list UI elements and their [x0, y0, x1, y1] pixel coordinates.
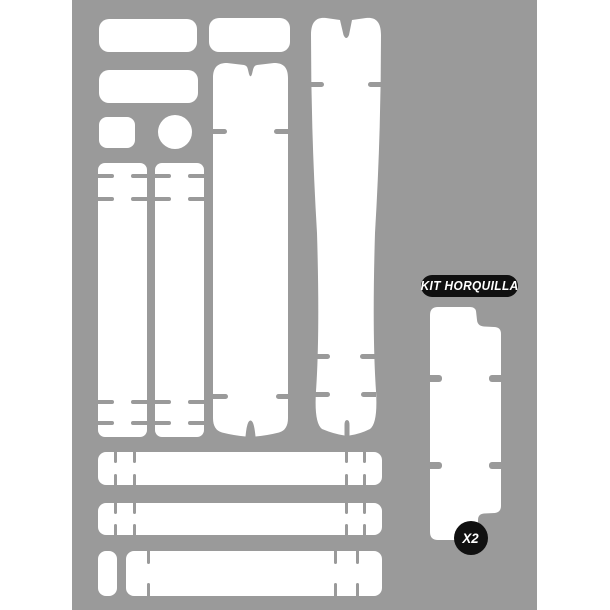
- cut-notch: [98, 197, 114, 201]
- piece-top-strip-right: [209, 18, 290, 52]
- cut-notch: [188, 174, 204, 178]
- cut-notch: [368, 82, 383, 87]
- sticker-sheet-board: [72, 0, 537, 610]
- cut-slit: [363, 503, 366, 514]
- product-image: KIT HORQUILLA X2: [0, 0, 610, 610]
- piece-horizontal-strip-3: [126, 551, 382, 596]
- cut-notch: [212, 394, 228, 399]
- cut-slit: [114, 452, 117, 463]
- cut-slit: [345, 503, 348, 514]
- piece-horizontal-strip-1: [98, 452, 382, 485]
- cut-notch: [155, 421, 171, 425]
- cut-notch: [155, 400, 171, 404]
- cut-notch: [98, 400, 114, 404]
- piece-small-square: [99, 117, 135, 148]
- cut-slit: [345, 452, 348, 463]
- cut-notch: [211, 129, 227, 134]
- cut-slit: [345, 474, 348, 485]
- quantity-badge: X2: [454, 521, 488, 555]
- cut-notch: [131, 421, 147, 425]
- cut-notch: [155, 197, 171, 201]
- cut-notch: [131, 400, 147, 404]
- cut-notch: [489, 462, 501, 469]
- piece-top-strip-left: [99, 19, 197, 52]
- cut-slit: [356, 551, 359, 564]
- cut-notch: [131, 174, 147, 178]
- piece-vertical-strip-2: [155, 163, 204, 437]
- cut-slit: [356, 583, 359, 596]
- cut-slit: [363, 524, 366, 535]
- cut-notch: [98, 421, 114, 425]
- piece-fork-leg-right: [309, 13, 383, 437]
- kit-label-pill: KIT HORQUILLA: [421, 275, 518, 297]
- cut-slit: [363, 474, 366, 485]
- cut-slit: [133, 503, 136, 514]
- cut-notch: [274, 129, 290, 134]
- cut-notch: [131, 197, 147, 201]
- cut-notch: [188, 400, 204, 404]
- cut-slit: [334, 583, 337, 596]
- piece-round-disc: [158, 115, 192, 149]
- cut-notch: [309, 82, 324, 87]
- cut-notch: [430, 375, 442, 382]
- cut-notch: [430, 462, 442, 469]
- piece-fork-leg-center: [211, 60, 290, 437]
- piece-second-strip: [99, 70, 198, 103]
- cut-slit: [334, 551, 337, 564]
- cut-slit: [147, 583, 150, 596]
- cut-slit: [133, 474, 136, 485]
- cut-notch: [489, 375, 501, 382]
- cut-notch: [98, 174, 114, 178]
- cut-slit: [345, 524, 348, 535]
- cut-slit: [133, 452, 136, 463]
- cut-notch: [315, 354, 330, 359]
- cut-slit: [114, 503, 117, 514]
- kit-label-text: KIT HORQUILLA: [421, 279, 519, 293]
- cut-notch: [360, 354, 375, 359]
- cut-notch: [315, 392, 330, 397]
- piece-small-tab: [98, 551, 117, 596]
- quantity-badge-text: X2: [463, 530, 479, 546]
- piece-fork-guard: [430, 307, 501, 540]
- piece-horizontal-strip-2: [98, 503, 382, 535]
- cut-notch: [188, 421, 204, 425]
- cut-slit: [363, 452, 366, 463]
- cut-slit: [133, 524, 136, 535]
- cut-notch: [276, 394, 292, 399]
- cut-slit: [114, 474, 117, 485]
- cut-notch: [155, 174, 171, 178]
- cut-slit: [114, 524, 117, 535]
- cut-slit: [147, 551, 150, 564]
- cut-notch: [361, 392, 376, 397]
- piece-vertical-strip-1: [98, 163, 147, 437]
- cut-notch: [188, 197, 204, 201]
